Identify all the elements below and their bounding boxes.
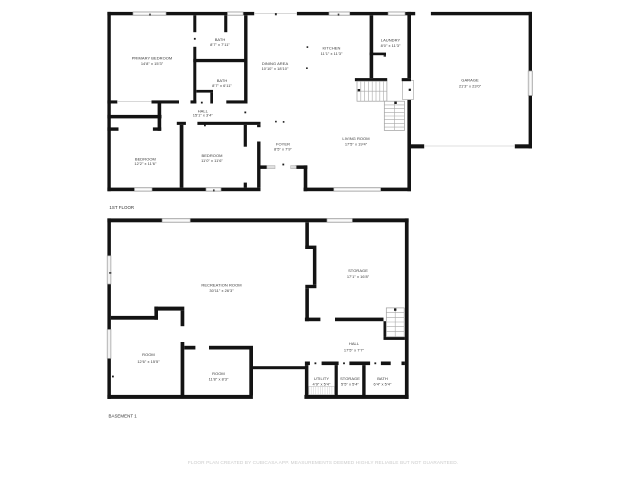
- svg-text:KITCHEN: KITCHEN: [323, 46, 341, 51]
- svg-text:BATH: BATH: [215, 37, 226, 42]
- svg-text:STORAGE: STORAGE: [340, 376, 360, 381]
- svg-text:5’5" x 5’4": 5’5" x 5’4": [341, 382, 359, 387]
- svg-text:30’11" x 26’3": 30’11" x 26’3": [209, 288, 234, 293]
- svg-text:FLOOR PLAN CREATED BY CUBICASA: FLOOR PLAN CREATED BY CUBICASA APP. MEAS…: [188, 460, 458, 466]
- svg-text:11’1" x 11’3": 11’1" x 11’3": [321, 51, 343, 56]
- svg-text:ROOM: ROOM: [142, 352, 155, 357]
- svg-text:LAUNDRY: LAUNDRY: [381, 37, 401, 42]
- svg-text:GARAGE: GARAGE: [461, 78, 479, 83]
- svg-text:17’5" x 7’7": 17’5" x 7’7": [344, 348, 365, 353]
- svg-text:17’1" x 16’8": 17’1" x 16’8": [347, 274, 370, 279]
- svg-text:14’8" x 15’3": 14’8" x 15’3": [141, 61, 164, 66]
- svg-text:BASEMENT 1: BASEMENT 1: [109, 413, 138, 418]
- svg-text:8’5" x 7’9": 8’5" x 7’9": [274, 147, 292, 152]
- svg-text:21’3" x 23’0": 21’3" x 23’0": [459, 83, 482, 88]
- svg-text:ROOM: ROOM: [212, 371, 225, 376]
- svg-text:12’2" x 11’6": 12’2" x 11’6": [134, 161, 157, 166]
- svg-text:UTILITY: UTILITY: [314, 376, 330, 381]
- svg-text:17’5" x 19’4": 17’5" x 19’4": [345, 141, 368, 146]
- svg-text:8’0" x 11’3": 8’0" x 11’3": [381, 43, 401, 48]
- svg-text:15’1" x 3’4": 15’1" x 3’4": [193, 113, 214, 118]
- svg-text:10’10" x 18’10": 10’10" x 18’10": [262, 66, 289, 71]
- svg-text:LIVING ROOM: LIVING ROOM: [342, 136, 369, 141]
- svg-text:4’9" x 5’4": 4’9" x 5’4": [313, 382, 331, 387]
- svg-text:6’4" x 5’4": 6’4" x 5’4": [374, 382, 392, 387]
- svg-text:RECREATION ROOM: RECREATION ROOM: [201, 283, 241, 288]
- svg-text:8’7" x 7’11": 8’7" x 7’11": [210, 42, 230, 47]
- svg-text:BATH: BATH: [377, 376, 388, 381]
- svg-text:HALL: HALL: [349, 341, 360, 346]
- svg-text:STORAGE: STORAGE: [348, 268, 368, 273]
- svg-text:1ST FLOOR: 1ST FLOOR: [109, 205, 134, 210]
- svg-text:12’6" x 15’5": 12’6" x 15’5": [137, 359, 160, 364]
- svg-text:8’7" x 6’11": 8’7" x 6’11": [212, 83, 232, 88]
- svg-text:11’8" x 8’3": 11’8" x 8’3": [209, 377, 229, 382]
- svg-text:11’0" x 11’6": 11’0" x 11’6": [201, 158, 223, 163]
